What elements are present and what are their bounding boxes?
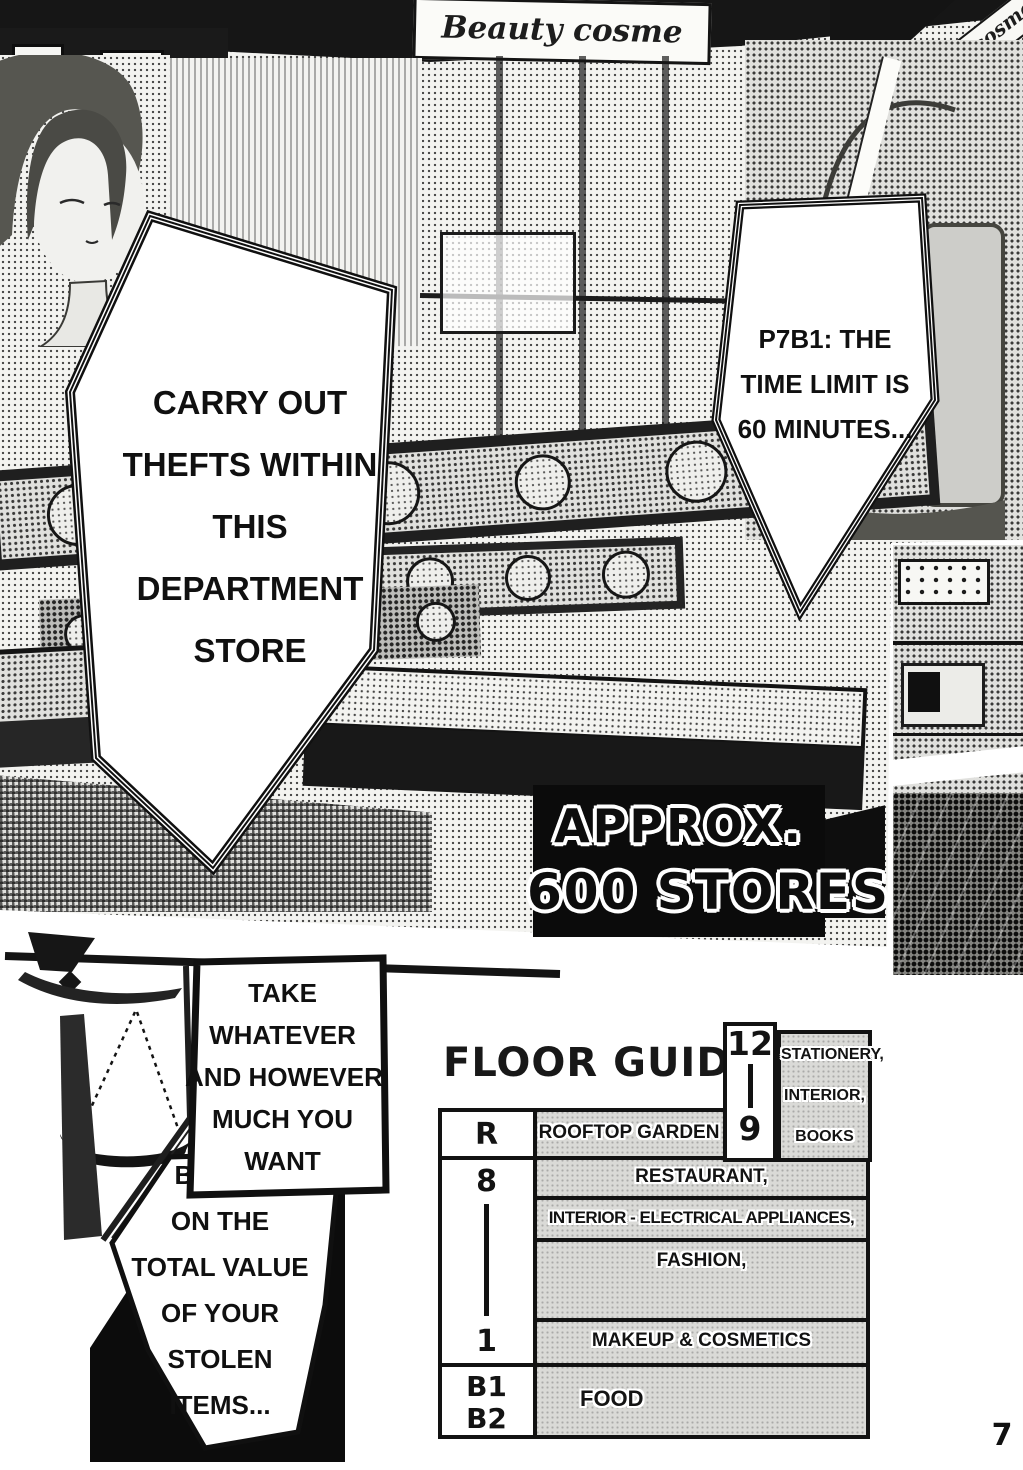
floor-guide: FLOOR GUIDE 12 9 STATIONERY, INTERIOR, B… [435,1018,880,1443]
bubble-text-line: TOTAL VALUE [120,1244,320,1290]
bubble-text: CARRY OUT THEFTS WITHIN THIS DEPARTMENT … [105,372,395,682]
floor-label-line: BOOKS [781,1116,868,1157]
bubble-text-line: CARRY OUT [105,372,395,434]
table-border [438,1363,868,1367]
speech-bubble-time-limit: P7B1: THE TIME LIMIT IS 60 MINUTES... [700,185,950,630]
floor-number-b1: B1 [438,1370,535,1403]
cabinet-door-art [908,672,940,712]
floor-guide-title: FLOOR GUIDE [443,1040,753,1086]
shelf-edge-art [893,733,1023,736]
floor-label-rooftop: ROOFTOP GARDEN [535,1122,723,1144]
shelf-cabinet-art [901,663,985,727]
bubble-text-line: TAKE [185,972,380,1014]
bubble-text-line: STOLEN [120,1336,320,1382]
bubble-text-line: WANT [185,1140,380,1182]
manga-page: { "page_number": "7", "colors": { "ink":… [0,0,1023,1465]
floor-label-food: FOOD [580,1386,700,1412]
bubble-text-line: DEPARTMENT [105,558,395,620]
table-border [438,1435,868,1439]
floor-number-9: 9 [727,1110,773,1148]
floor-label-line: STATIONERY, [781,1034,868,1075]
caption-approx-stores: APPROX. 600 STORES [533,785,825,937]
floor-cell-stationery: STATIONERY, INTERIOR, BOOKS [777,1030,872,1162]
bubble-text-line: 60 MINUTES... [718,407,932,452]
bubble-text-line: MUCH YOU [185,1098,380,1140]
bubble-text-line: THEFTS WITHIN [105,434,395,496]
table-border [866,1156,870,1439]
bubble-text-line: TIME LIMIT IS [718,362,932,407]
bubble-text: TAKE WHATEVER AND HOWEVER MUCH YOU WANT [185,972,380,1182]
page-number: 7 [985,1418,1019,1453]
floor-label-interior-appliances: INTERIOR - ELECTRICAL APPLIANCES, [535,1208,868,1228]
caption-line: 600 STORES [527,863,831,921]
round-mirror-art [504,554,552,602]
round-mirror-art [601,550,651,600]
bubble-text-line: WHATEVER [185,1014,380,1056]
display-case-art [440,232,576,334]
table-border [535,1238,868,1242]
floor-number-r: R [438,1117,535,1152]
floor-number-12: 12 [727,1026,773,1062]
bubble-text-line: THIS [105,496,395,558]
floor-label-line: INTERIOR, [781,1075,868,1116]
round-mirror-art [415,601,456,642]
bubble-text-line: P7B1: THE [718,317,932,362]
white-band-art [893,745,1023,786]
table-border [438,1108,723,1112]
table-border [535,1318,868,1322]
floor-number-b2: B2 [438,1402,535,1435]
floor-number-1: 1 [438,1324,535,1359]
bubble-text-line: AND HOWEVER [185,1056,380,1098]
bubble-text-line: OF YOUR [120,1290,320,1336]
bubble-text: P7B1: THE TIME LIMIT IS 60 MINUTES... [718,317,932,452]
round-mirror-art [512,453,572,513]
shelf-edge-art [893,641,1023,645]
bubble-text-line: ITEMS... [120,1382,320,1428]
floor-label-restaurant: RESTAURANT, [535,1166,868,1188]
floor-range-line [484,1204,489,1316]
table-border [535,1196,868,1200]
floor-label-makeup: MAKEUP & COSMETICS [535,1330,868,1352]
beauty-cosme-sign-text: Beauty cosme [441,9,683,50]
floor-number-8: 8 [438,1164,535,1199]
speech-bubble-carry-out: CARRY OUT THEFTS WITHIN THIS DEPARTMENT … [55,200,400,880]
caption-line: APPROX. [533,799,825,853]
floor-label-fashion: FASHION, [535,1250,868,1272]
floor-cell-12-9: 12 9 [723,1022,777,1162]
bubble-text-line: STORE [105,620,395,682]
speech-bubble-take-whatever: TAKE WHATEVER AND HOWEVER MUCH YOU WANT [175,950,390,1205]
floor-range-line [748,1064,753,1108]
dark-floor-art [893,793,1023,975]
